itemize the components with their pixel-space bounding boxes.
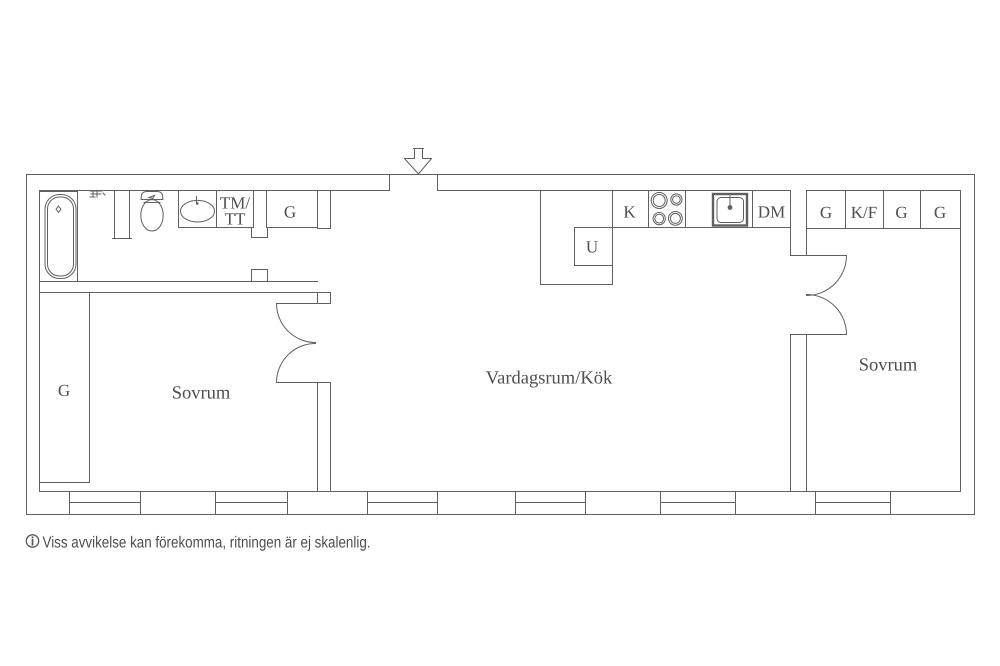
svg-text:G: G — [934, 203, 946, 222]
svg-text:K/F: K/F — [851, 203, 877, 222]
svg-text:K: K — [623, 203, 636, 222]
svg-text:Sovrum: Sovrum — [172, 384, 231, 404]
svg-text:TT: TT — [225, 210, 246, 229]
svg-text:U: U — [586, 238, 598, 257]
svg-text:Vardagsrum/Kök: Vardagsrum/Kök — [486, 369, 613, 389]
svg-text:Viss avvikelse kan förekomma,: Viss avvikelse kan förekomma, ritningen … — [43, 535, 371, 552]
svg-text:G: G — [284, 203, 296, 222]
svg-text:G: G — [820, 203, 832, 222]
svg-text:G: G — [58, 381, 70, 400]
svg-text:DM: DM — [758, 203, 785, 222]
svg-text:Sovrum: Sovrum — [859, 356, 918, 376]
svg-text:G: G — [895, 203, 907, 222]
